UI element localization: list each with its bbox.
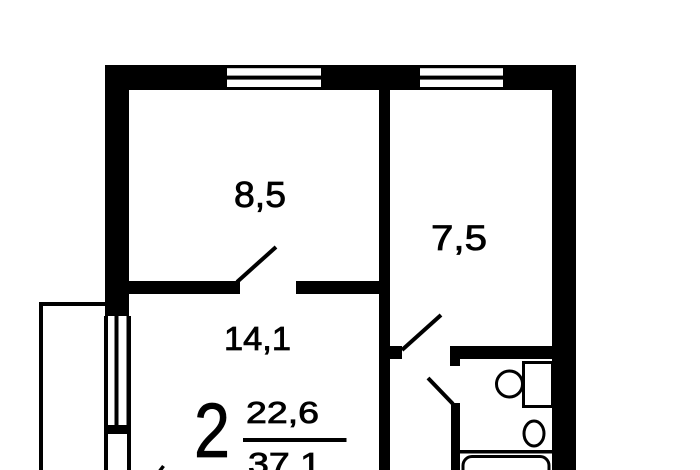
svg-text:7,5: 7,5 [431, 219, 487, 258]
svg-text:22,6: 22,6 [246, 395, 319, 430]
svg-text:2: 2 [194, 388, 230, 470]
svg-text:37,1: 37,1 [248, 446, 321, 470]
svg-text:14,1: 14,1 [224, 320, 291, 357]
svg-text:8,5: 8,5 [234, 174, 286, 215]
